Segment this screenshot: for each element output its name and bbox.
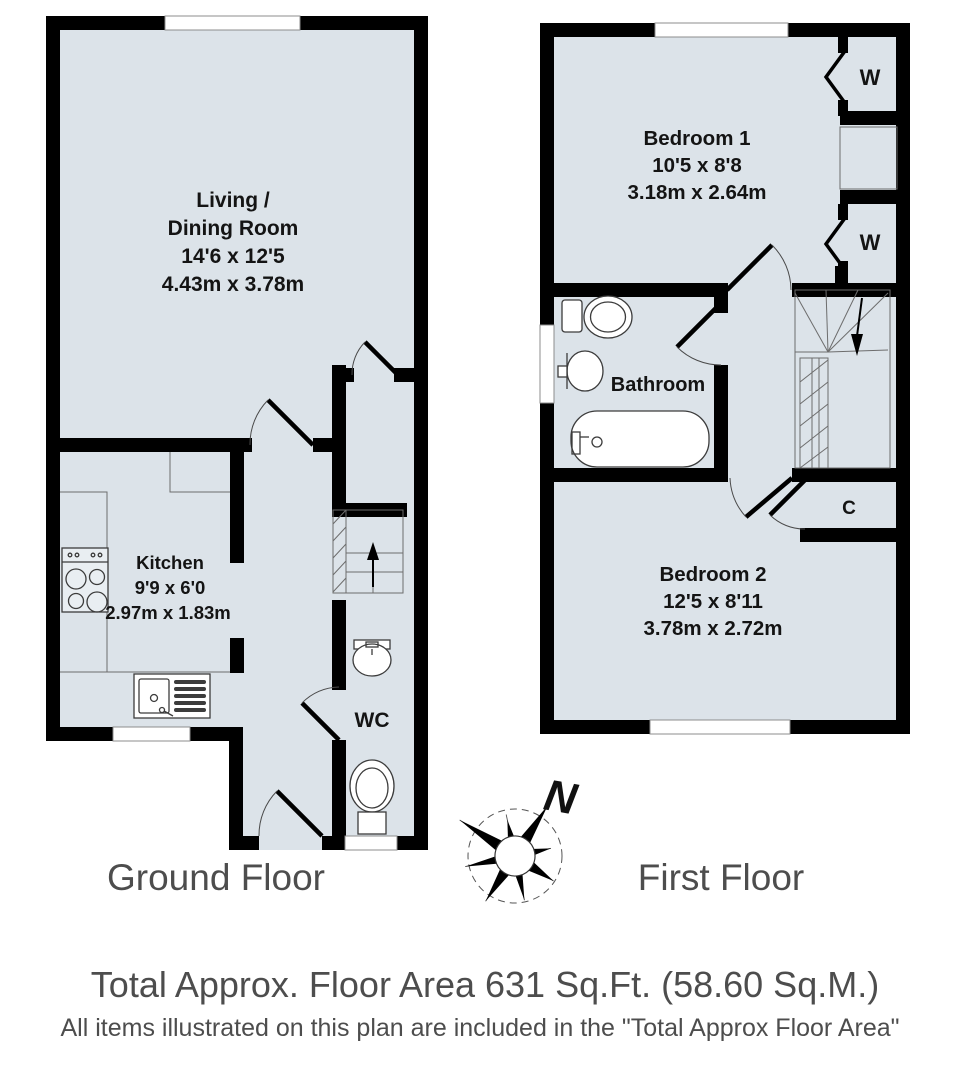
footer-total-area: Total Approx. Floor Area 631 Sq.Ft. (58.… (91, 964, 879, 1005)
bedroom1-dims-m: 3.18m x 2.64m (627, 181, 766, 204)
window (165, 16, 300, 30)
bathroom-label: Bathroom (611, 374, 705, 396)
bedroom2-dims-ft: 12'5 x 8'11 (663, 590, 763, 613)
window (345, 836, 397, 850)
floorplan-page: Living / Dining Room 14'6 x 12'5 4.43m x… (0, 0, 971, 1080)
first-floor-plan: Bedroom 1 10'5 x 8'8 3.18m x 2.64m Bathr… (540, 23, 903, 734)
living-room-dims-ft: 14'6 x 12'5 (181, 245, 285, 268)
wardrobe-bottom-label: W (860, 230, 881, 255)
ground-floor-title: Ground Floor (107, 857, 325, 898)
window (113, 727, 190, 741)
wardrobe-top-label: W (860, 65, 881, 90)
footer: Total Approx. Floor Area 631 Sq.Ft. (58.… (60, 964, 899, 1042)
wc-basin-icon (353, 640, 391, 676)
hob-icon (62, 548, 108, 612)
bedroom1-label: Bedroom 1 (643, 127, 750, 150)
compass-north-label: N (541, 771, 582, 825)
entrance-opening (259, 836, 322, 850)
bedroom1-dims-ft: 10'5 x 8'8 (652, 154, 742, 177)
bedroom2-dims-m: 3.78m x 2.72m (643, 617, 782, 640)
floorplan-svg: Living / Dining Room 14'6 x 12'5 4.43m x… (0, 0, 971, 1080)
compass-rose-icon: N (430, 770, 586, 927)
cupboard-label: C (842, 498, 856, 519)
window (650, 720, 790, 734)
window (655, 23, 788, 37)
first-floor-title: First Floor (638, 857, 805, 898)
toilet-icon (562, 296, 632, 338)
kitchen-label: Kitchen (136, 552, 204, 573)
wc-label: WC (355, 709, 390, 732)
ground-floor-plan: Living / Dining Room 14'6 x 12'5 4.43m x… (53, 16, 421, 850)
kitchen-dims-m: 2.97m x 1.83m (105, 602, 230, 623)
living-room-label: Living / (196, 189, 270, 212)
kitchen-dims-ft: 9'9 x 6'0 (135, 577, 206, 598)
living-room-dims-m: 4.43m x 3.78m (162, 273, 304, 296)
bedroom2-label: Bedroom 2 (659, 563, 766, 586)
sink-icon (134, 674, 210, 718)
window (540, 325, 554, 403)
bath-icon (571, 411, 709, 467)
living-room-label2: Dining Room (168, 217, 299, 240)
footer-disclaimer: All items illustrated on this plan are i… (60, 1014, 899, 1042)
